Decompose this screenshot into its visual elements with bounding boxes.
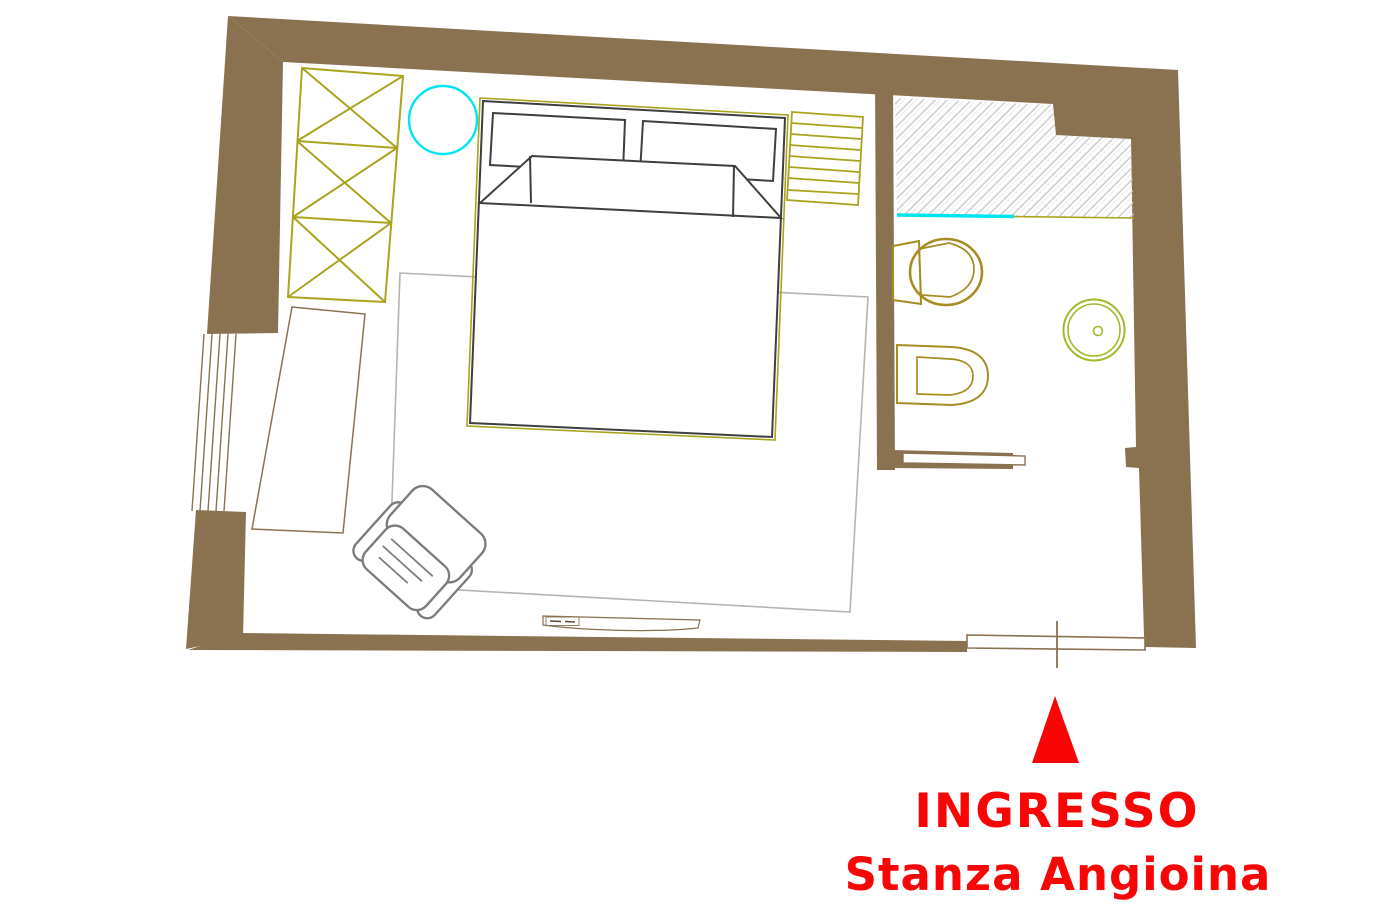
washbasin-icon <box>1064 300 1125 361</box>
armchair-icon <box>348 476 496 623</box>
entrance-label: INGRESSO <box>914 784 1199 839</box>
wall-left-lower <box>186 510 246 649</box>
floor-plan-page: INGRESSO Stanza Angioina <box>0 0 1400 908</box>
shower-screen-icon <box>897 215 1014 217</box>
radiator-icon <box>543 616 700 631</box>
stool-icon <box>409 86 477 154</box>
desk-icon <box>252 307 365 533</box>
toilet-icon <box>893 239 982 305</box>
nightstand-icon <box>787 112 863 205</box>
floor-plan-drawing: INGRESSO Stanza Angioina <box>0 0 1400 908</box>
window-icon <box>192 334 236 511</box>
wardrobe-icon <box>288 68 403 302</box>
entrance-arrow-icon <box>1032 696 1079 763</box>
bidet-icon <box>897 345 988 405</box>
entrance-door-icon <box>967 621 1145 668</box>
double-bed-icon <box>467 98 788 440</box>
room-name-label: Stanza Angioina <box>845 848 1272 901</box>
wall-bottom <box>188 633 967 652</box>
wall-left-upper <box>207 16 283 334</box>
